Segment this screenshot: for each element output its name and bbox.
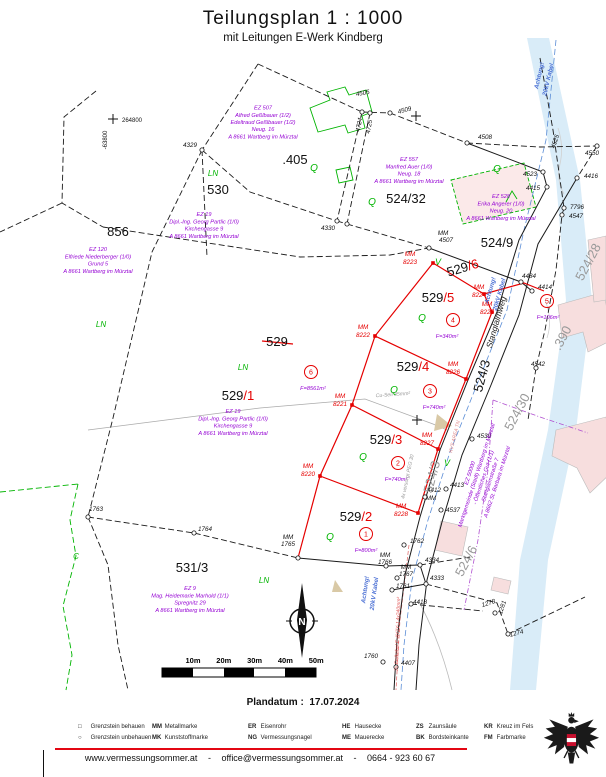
plan-date-value: 17.07.2024 bbox=[309, 697, 359, 708]
boundary-point-marker bbox=[368, 111, 372, 115]
point-number: 4509 bbox=[397, 105, 413, 116]
landuse-symbol: LN bbox=[259, 576, 269, 585]
scalebar-label: 50m bbox=[309, 656, 324, 665]
parcel-number: 530 bbox=[207, 182, 229, 197]
vegetation-lines bbox=[0, 484, 78, 690]
legend-symbol: □ bbox=[78, 724, 89, 730]
footer-sep-2: - bbox=[354, 753, 357, 763]
cadastral-map: 4329450545094724472543304508452344154550… bbox=[0, 0, 606, 777]
owner-line: Neug. 16 bbox=[252, 127, 276, 133]
landuse-symbol: Q bbox=[418, 313, 426, 324]
point-number: MM bbox=[283, 534, 294, 541]
area-value: F=800m² bbox=[355, 548, 379, 554]
owner-line: EZ 557 bbox=[400, 157, 419, 163]
owner-line: A 8661 Wartberg im Mürztal bbox=[197, 431, 268, 437]
point-number: 1760 bbox=[364, 653, 379, 660]
scalebar-label: 40m bbox=[278, 656, 293, 665]
legend-item: HE Hausecke bbox=[342, 724, 381, 730]
point-number: 4334 bbox=[425, 557, 440, 564]
gray-utility-lines bbox=[88, 399, 447, 430]
point-number: MM bbox=[358, 324, 369, 331]
area-value: F=8561m² bbox=[300, 386, 327, 392]
legend-symbol: ZS bbox=[416, 724, 427, 730]
legend-label: Hausecke bbox=[353, 724, 381, 730]
point-number: MM bbox=[396, 503, 407, 510]
new-boundary-point-marker bbox=[373, 334, 377, 338]
legend-symbol: ER bbox=[248, 724, 259, 730]
owner-line: Dipl.-Ing. Georg Partlic (1/0) bbox=[169, 219, 239, 225]
new-parcel-number: 529/4 bbox=[397, 359, 430, 374]
legend-item: MK Kunststoffmarke bbox=[152, 735, 208, 741]
legend-item: NG Vermessungsnagel bbox=[248, 735, 312, 741]
point-number: 4547 bbox=[569, 213, 584, 220]
owner-line: Kirchengasse 9 bbox=[185, 227, 224, 233]
footer-sep-1: - bbox=[208, 753, 211, 763]
legend-symbol: ME bbox=[342, 735, 353, 741]
boundary-point-marker bbox=[388, 111, 392, 115]
parcel-number: .405 bbox=[282, 152, 307, 167]
boundary-point-marker bbox=[560, 213, 564, 217]
point-number: 4724 bbox=[355, 117, 364, 133]
point-number: 4407 bbox=[401, 660, 416, 667]
coordinate-north: -63800 bbox=[103, 130, 109, 149]
point-number: 1767 bbox=[399, 571, 414, 578]
point-number: 4537 bbox=[446, 507, 461, 514]
new-boundary-point-marker bbox=[464, 377, 468, 381]
owner-block: EZ 19Dipl.-Ing. Georg Partlic (1/0)Kirch… bbox=[197, 409, 268, 437]
parcel-number: 524/32 bbox=[386, 191, 426, 206]
map-annotation: Cu-Seil 35mm² bbox=[375, 391, 410, 399]
parcel-number: 529 bbox=[266, 334, 288, 349]
owner-line: A 8661 Wartberg im Mürztal bbox=[154, 608, 225, 614]
new-boundary-point-marker bbox=[416, 511, 420, 515]
boundary-point-marker bbox=[390, 588, 394, 592]
point-number: 4484 bbox=[522, 273, 537, 280]
point-number: 1762 bbox=[410, 538, 425, 545]
point-number: 7796 bbox=[570, 204, 585, 211]
landuse-symbol: Q bbox=[326, 532, 334, 543]
boundary-point-marker bbox=[545, 185, 549, 189]
boundary-point-marker bbox=[444, 487, 448, 491]
point-number: 4523 bbox=[523, 171, 538, 178]
owner-line: EZ 507 bbox=[254, 106, 273, 112]
email-link[interactable]: office@vermessungsommer.at bbox=[221, 753, 343, 763]
parcel-number: 524/30 bbox=[501, 391, 533, 433]
scalebar-label: 10m bbox=[185, 656, 200, 665]
point-number: 8226 bbox=[446, 369, 461, 376]
legend-item: ME Mauerecke bbox=[342, 735, 384, 741]
legend-item: ZS Zaunsäule bbox=[416, 724, 457, 730]
boundary-point-marker bbox=[530, 289, 534, 293]
boundary-point-marker bbox=[424, 582, 428, 586]
phone-number: 0664 - 923 60 67 bbox=[367, 753, 435, 763]
point-number: 4542 bbox=[531, 361, 546, 368]
new-boundary-point-marker bbox=[318, 474, 322, 478]
boundary-point-marker bbox=[465, 141, 469, 145]
point-number: MM bbox=[438, 230, 449, 237]
legend-label: Zaunsäule bbox=[427, 724, 457, 730]
parcel-number: 856 bbox=[107, 224, 129, 239]
point-number: 1765 bbox=[281, 541, 296, 548]
lot-number: 2 bbox=[396, 461, 400, 468]
owner-line: Kirchengasse 9 bbox=[214, 424, 253, 430]
new-boundary-point-marker bbox=[436, 447, 440, 451]
legend-label: Eisenrohr bbox=[259, 724, 286, 730]
point-number: MM bbox=[474, 284, 485, 291]
point-number: 4550 bbox=[585, 150, 600, 157]
legend-symbol: BK bbox=[416, 735, 427, 741]
legend-item: BK Bordsteinkante bbox=[416, 735, 469, 741]
point-number: 4329 bbox=[183, 142, 198, 149]
owner-block: EZ 557Manfred Auer (1/0)Neug. 18A 8661 W… bbox=[373, 157, 444, 185]
boundary-point-marker bbox=[439, 508, 443, 512]
boundary-point-marker bbox=[427, 246, 431, 250]
boundary-point-marker bbox=[519, 280, 523, 284]
legend-label: Metallmarke bbox=[163, 724, 197, 730]
point-number: 4414 bbox=[538, 284, 553, 291]
landuse-symbol: LN bbox=[238, 363, 248, 372]
owner-line: A 8661 Wartberg im Mürztal bbox=[373, 179, 444, 185]
owner-line: A 8661 Wartberg im Mürztal bbox=[168, 234, 239, 240]
lot-number: 6 bbox=[309, 370, 313, 377]
lot-number: 4 bbox=[451, 318, 455, 325]
boundary-point-marker bbox=[86, 515, 90, 519]
point-number: 8222 bbox=[356, 332, 371, 339]
legend-symbol: ○ bbox=[78, 735, 89, 741]
scale-bar bbox=[162, 668, 316, 677]
owner-block: EZ 9Mag. Heidemarie Marhold (1/1)Spregni… bbox=[151, 586, 229, 614]
landuse-symbol: LN bbox=[96, 320, 106, 329]
website-link[interactable]: www.vermessungsommer.at bbox=[85, 753, 198, 763]
point-number: 4507 bbox=[439, 237, 454, 244]
legend-label: Kunststoffmarke bbox=[163, 735, 208, 741]
point-number: MM bbox=[448, 361, 459, 368]
boundary-point-marker bbox=[595, 144, 599, 148]
point-number: MM bbox=[405, 251, 416, 258]
legend-label: Grenzstein unbehauen bbox=[89, 735, 151, 741]
point-number: 1763 bbox=[89, 506, 104, 513]
legend-item: KR Kreuz im Fels bbox=[484, 724, 533, 730]
landuse-symbol: V bbox=[444, 458, 451, 468]
owner-line: A 8661 Wartberg im Mürztal bbox=[227, 134, 298, 140]
landuse-symbol: C bbox=[73, 552, 79, 561]
point-number: 1764 bbox=[198, 526, 213, 533]
legend-item: □ Grenzstein behauen bbox=[78, 724, 145, 730]
lot-number: 1 bbox=[364, 532, 368, 539]
landuse-symbol: Q bbox=[310, 163, 318, 174]
boundary-point-marker bbox=[470, 437, 474, 441]
point-number: MM bbox=[335, 393, 346, 400]
owner-line: Alfred Geßlbauer (1/2) bbox=[234, 113, 291, 119]
point-number: 4505 bbox=[355, 89, 371, 98]
legend-symbol: NG bbox=[248, 735, 259, 741]
point-number: 4416 bbox=[584, 173, 599, 180]
owner-block: EZ 507Alfred Geßlbauer (1/2)Edeltraud Ge… bbox=[227, 106, 298, 141]
owner-line: Dipl.-Ing. Georg Partlic (1/0) bbox=[198, 416, 268, 422]
boundary-point-marker bbox=[192, 531, 196, 535]
point-number: 1281 bbox=[497, 600, 508, 615]
contact-footer: www.vermessungsommer.at - office@vermess… bbox=[0, 753, 520, 763]
legend-label: Bordsteinkante bbox=[427, 735, 469, 741]
point-number: 8228 bbox=[394, 511, 409, 518]
owner-line: A 8661 Wartberg im Mürztal bbox=[62, 269, 133, 275]
legend-symbol: KR bbox=[484, 724, 495, 730]
point-number: MM bbox=[401, 564, 412, 571]
owner-line: EZ 19 bbox=[197, 212, 212, 218]
owner-line: A 8661 Wartberg im Mürztal bbox=[465, 216, 536, 222]
plan-sheet: Teilungsplan 1 : 1000 mit Leitungen E-We… bbox=[0, 0, 606, 777]
owner-line: Manfred Auer (1/0) bbox=[386, 164, 433, 170]
point-number: 4415 bbox=[526, 185, 541, 192]
point-number: 8223 bbox=[403, 259, 418, 266]
plan-date: Plandatum : 17.07.2024 bbox=[0, 697, 606, 708]
point-number: 8220 bbox=[301, 471, 316, 478]
legend-symbol: HE bbox=[342, 724, 353, 730]
new-parcel-number: 529/1 bbox=[222, 388, 255, 403]
lot-number: 5 bbox=[545, 299, 549, 306]
point-number: MM bbox=[380, 552, 391, 559]
new-parcel-number: 529/2 bbox=[340, 509, 373, 524]
boundary-point-marker bbox=[402, 543, 406, 547]
boundary-point-marker bbox=[381, 660, 385, 664]
scalebar-label: 20m bbox=[216, 656, 231, 665]
area-value: F=340m² bbox=[436, 334, 460, 340]
point-number: 8227 bbox=[420, 440, 435, 447]
owner-line: EZ 528 bbox=[492, 194, 511, 200]
point-number: 4418 bbox=[413, 599, 428, 606]
grid-crosses bbox=[108, 111, 422, 425]
boundary-point-marker bbox=[541, 170, 545, 174]
boundary-point-marker bbox=[418, 563, 422, 567]
owner-line: EZ 120 bbox=[89, 247, 108, 253]
landuse-symbol: V bbox=[435, 257, 442, 267]
point-number: 4508 bbox=[478, 134, 493, 141]
landuse-symbol: Q bbox=[493, 164, 501, 175]
point-number: MM bbox=[426, 495, 437, 502]
legend-item: ER Eisenrohr bbox=[248, 724, 286, 730]
map-annotation: 20kV Kabel bbox=[369, 577, 381, 612]
point-number: 1766 bbox=[378, 559, 393, 566]
owner-line: Neug. 18 bbox=[398, 172, 422, 178]
owner-line: Grund 5 bbox=[88, 262, 109, 268]
legend-label: Vermessungsnagel bbox=[259, 735, 312, 741]
landuse-symbol: Q bbox=[368, 197, 376, 208]
legend-symbol: MM bbox=[152, 724, 163, 730]
new-boundary-point-marker bbox=[350, 403, 354, 407]
legend-symbol: MK bbox=[152, 735, 163, 741]
legend-symbol: FM bbox=[484, 735, 495, 741]
boundary-point-marker bbox=[562, 206, 566, 210]
owner-line: EZ 19 bbox=[226, 409, 241, 415]
legend-label: Farbmarke bbox=[495, 735, 526, 741]
legend-label: Mauerecke bbox=[353, 735, 384, 741]
owner-line: Spregnitz 29 bbox=[174, 601, 205, 607]
legend-label: Kreuz im Fels bbox=[495, 724, 533, 730]
legend-label: Grenzstein behauen bbox=[89, 724, 145, 730]
owner-line: EZ 9 bbox=[184, 586, 196, 592]
owner-block: EZ 19Dipl.-Ing. Georg Partlic (1/0)Kirch… bbox=[168, 212, 239, 240]
boundary-point-marker bbox=[335, 219, 339, 223]
point-number: 1761 bbox=[396, 583, 410, 590]
point-number: 8221 bbox=[333, 401, 347, 408]
boundary-point-marker bbox=[575, 176, 579, 180]
north-letter: N bbox=[298, 617, 305, 628]
footer-separator-line bbox=[55, 748, 467, 750]
new-parcel-number: 529/3 bbox=[370, 432, 403, 447]
area-value: F=740m² bbox=[423, 405, 447, 411]
owner-line: Elfriede Niederberger (1/0) bbox=[65, 254, 131, 260]
parcel-number: 531/3 bbox=[176, 560, 209, 575]
boundary-point-marker bbox=[360, 110, 364, 114]
coordinate-east: 264800 bbox=[122, 118, 143, 124]
lot-number: 3 bbox=[428, 389, 432, 396]
legend-item: ○ Grenzstein unbehauen bbox=[78, 735, 151, 741]
landuse-symbol: LN bbox=[208, 169, 218, 178]
plan-date-label: Plandatum : bbox=[247, 697, 304, 708]
landuse-symbol: Q bbox=[359, 452, 367, 463]
point-number: MM bbox=[422, 432, 433, 439]
new-parcel-number: 529/6 bbox=[445, 256, 481, 280]
owner-line: Neug. 20 bbox=[490, 209, 514, 215]
owner-line: Mag. Heidemarie Marhold (1/1) bbox=[151, 593, 229, 599]
stream bbox=[510, 38, 592, 690]
point-number: 4725 bbox=[365, 119, 374, 135]
boundary-point-marker bbox=[200, 148, 204, 152]
austria-eagle bbox=[544, 712, 599, 764]
boundary-point-marker bbox=[345, 222, 349, 226]
point-number: 4330 bbox=[321, 225, 336, 232]
area-value: F=106m² bbox=[537, 315, 561, 321]
owner-line: Erika Angerer (1/0) bbox=[477, 201, 524, 207]
point-number: 4333 bbox=[430, 575, 445, 582]
scalebar-label: 30m bbox=[247, 656, 262, 665]
point-number: MM bbox=[303, 463, 314, 470]
boundary-point-marker bbox=[296, 556, 300, 560]
point-number: 4413 bbox=[450, 482, 465, 489]
owner-line: Edeltraud Geßlbauer (1/2) bbox=[231, 120, 296, 126]
legend-item: MM Metallmarke bbox=[152, 724, 197, 730]
new-parcel-number: 529/5 bbox=[422, 290, 455, 305]
owner-block: EZ 120Elfriede Niederberger (1/0)Grund 5… bbox=[62, 247, 133, 275]
legend-item: FM Farbmarke bbox=[484, 735, 526, 741]
parcel-number: 524/9 bbox=[481, 235, 514, 250]
